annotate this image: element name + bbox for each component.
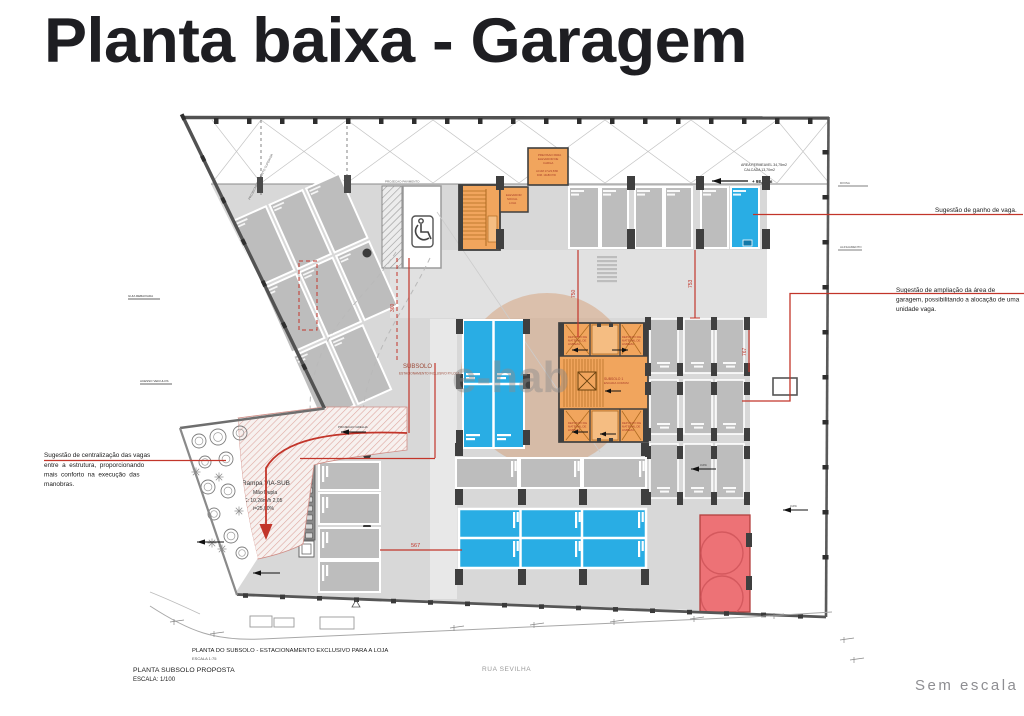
svg-text:Sugestão de ganho de vaga.: Sugestão de ganho de vaga. <box>935 207 1017 214</box>
svg-text:ESCADA COMUM: ESCADA COMUM <box>604 381 629 385</box>
svg-text:manobras.: manobras. <box>44 481 74 488</box>
svg-text:C: 10,26m/h 2,05: C: 10,26m/h 2,05 <box>244 498 283 504</box>
svg-text:ESCALA 1:75: ESCALA 1:75 <box>192 656 217 661</box>
svg-text:entre a estrutura, proporci: entre a estrutura, proporcionando <box>44 462 145 469</box>
svg-text:LIMPEZA: LIMPEZA <box>568 342 580 346</box>
svg-text:LIMPEZA: LIMPEZA <box>622 342 634 346</box>
svg-text:ESCALA: 1/100: ESCALA: 1/100 <box>133 677 176 683</box>
svg-text:unidade vaga.: unidade vaga. <box>896 306 936 313</box>
svg-text:LIMPEZA: LIMPEZA <box>622 428 634 432</box>
svg-text:ALINHAMENTO: ALINHAMENTO <box>840 245 862 249</box>
svg-text:PROJECAO GRELHA: PROJECAO GRELHA <box>338 425 368 429</box>
svg-text:753: 753 <box>688 279 694 288</box>
svg-text:LOJA: LOJA <box>509 201 516 205</box>
svg-text:Sugestão de centralização das: Sugestão de centralização das vagas <box>44 452 150 459</box>
svg-text:e-hab: e-hab <box>452 353 569 402</box>
svg-text:ACUM 17x23,5/80: ACUM 17x23,5/80 <box>536 169 558 173</box>
svg-text:SUBSOLO: SUBSOLO <box>403 364 432 370</box>
svg-text:750: 750 <box>571 289 577 298</box>
svg-text:CARGA: CARGA <box>543 161 553 165</box>
svg-text:CALCADA 13,70m2: CALCADA 13,70m2 <box>744 168 775 172</box>
svg-text:garagem, possibilitando a aloc: garagem, possibilitando a alocação de um… <box>896 297 1020 304</box>
svg-text:PLANTA DO SUBSOLO - ESTACIONAM: PLANTA DO SUBSOLO - ESTACIONAMENTO EXCLU… <box>192 648 388 654</box>
svg-text:567: 567 <box>411 543 420 549</box>
svg-text:mais conforto na execução: mais conforto na execução das <box>44 472 140 479</box>
svg-text:RUA SEVILHA: RUA SEVILHA <box>482 666 531 673</box>
svg-text:767: 767 <box>742 347 748 356</box>
svg-text:DIVISA: DIVISA <box>840 181 850 185</box>
svg-text:DIM. 19x80 P/D: DIM. 19x80 P/D <box>537 173 556 177</box>
svg-text:AREA PERMEAVEL 34,75m2: AREA PERMEAVEL 34,75m2 <box>741 163 787 167</box>
svg-text:360: 360 <box>390 303 396 312</box>
svg-text:i=2%: i=2% <box>790 504 797 508</box>
svg-text:i=2%: i=2% <box>700 463 707 467</box>
svg-text:ACESSO VEICULOS: ACESSO VEICULOS <box>140 379 169 383</box>
svg-text:PLANTA SUBSOLO PROPOSTA: PLANTA SUBSOLO PROPOSTA <box>133 667 235 674</box>
svg-text:PROJECAO PAVIMENTO: PROJECAO PAVIMENTO <box>385 180 420 184</box>
svg-text:i=25,00%: i=25,00% <box>253 506 275 512</box>
svg-text:GUIA REBAIXADA: GUIA REBAIXADA <box>128 294 153 298</box>
